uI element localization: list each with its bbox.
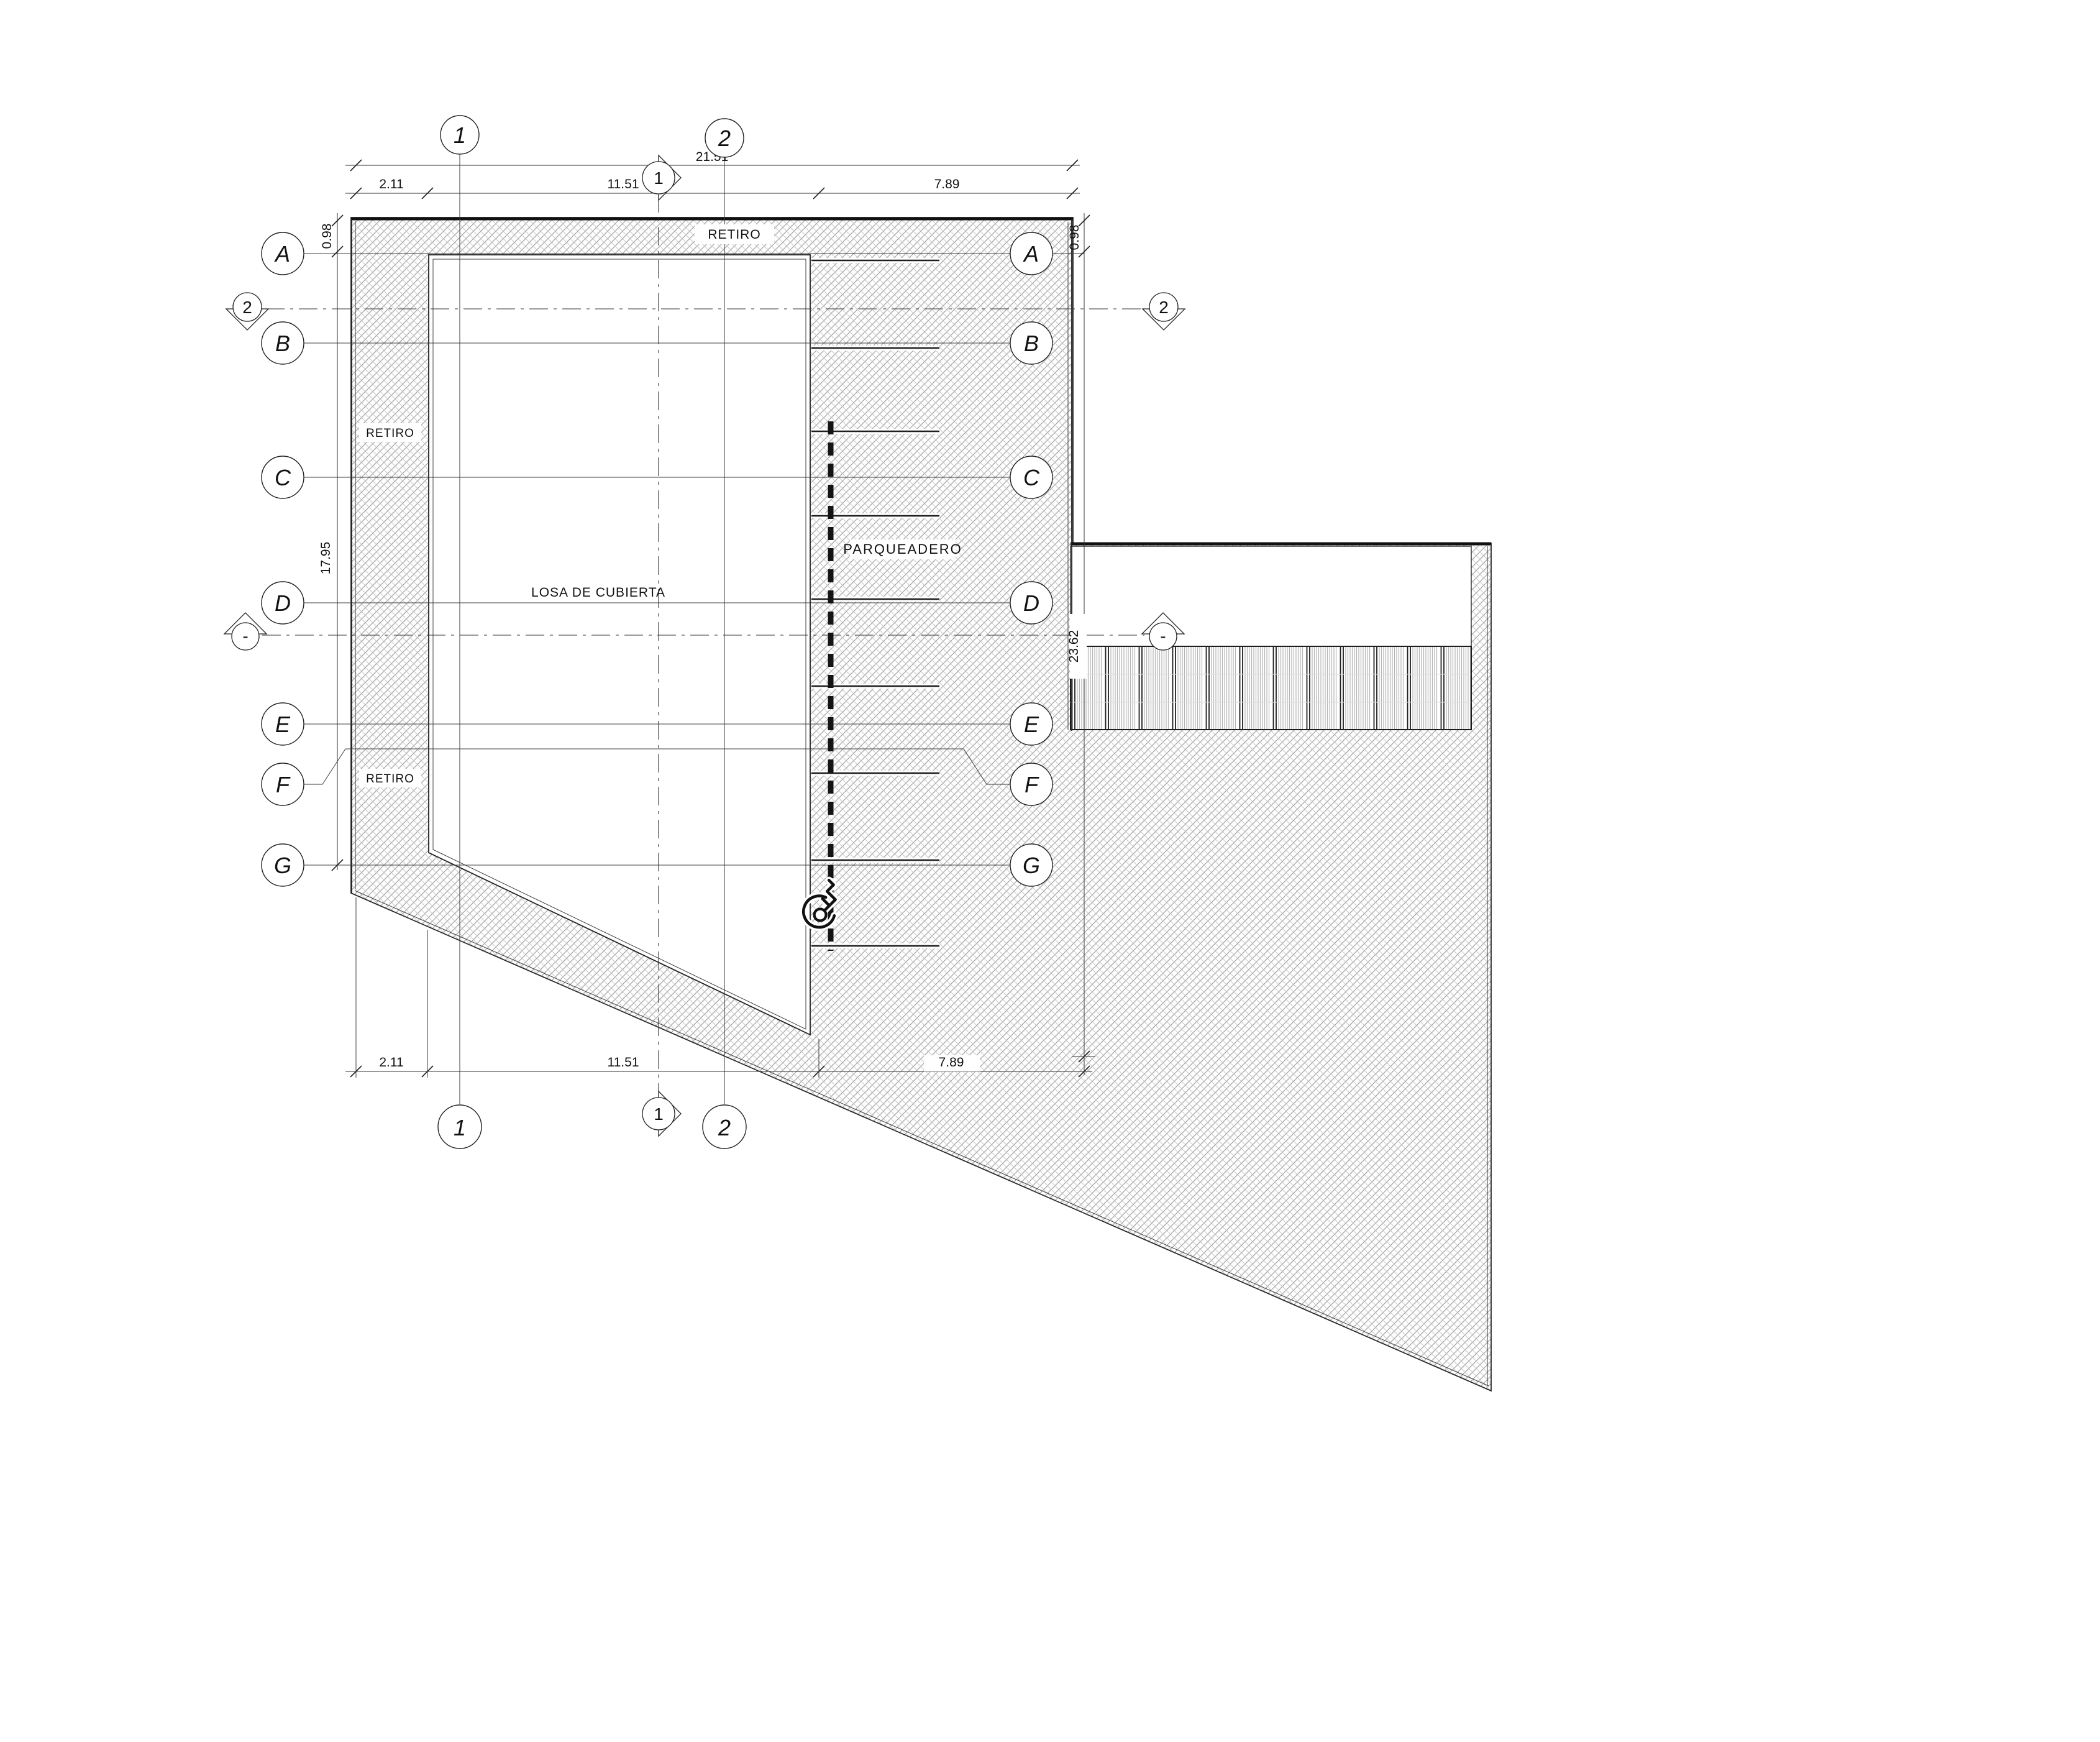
dim-slab-width-top: 11.51 bbox=[608, 177, 639, 191]
grid-bubble-col1-bottom-label: 1 bbox=[454, 1115, 466, 1140]
row-c-left-label: C bbox=[275, 465, 291, 490]
blueprint-page: 21.51 2.11 11.51 7.89 2.11 11.51 7.89 0.… bbox=[0, 0, 2100, 1742]
section-marker-dash-left-label: - bbox=[242, 626, 248, 646]
dim-grid-height: 17.95 bbox=[319, 542, 333, 575]
roof-plan-drawing: 21.51 2.11 11.51 7.89 2.11 11.51 7.89 0.… bbox=[0, 0, 2100, 1742]
right-annex bbox=[1071, 546, 1471, 730]
label-retiro-left-upper: RETIRO bbox=[366, 427, 414, 440]
annex-pad bbox=[1071, 546, 1471, 646]
label-parking: PARQUEADERO bbox=[843, 541, 962, 557]
section-marker-2-left-label: 2 bbox=[242, 298, 252, 317]
section-marker-1-bottom-label: 1 bbox=[654, 1104, 664, 1124]
dim-setback-depth-left: 0.98 bbox=[320, 224, 334, 249]
label-roof-slab: LOSA DE CUBIERTA bbox=[531, 585, 665, 600]
annex-ramp-stripes bbox=[1071, 646, 1471, 730]
dim-setback-width-bottom: 2.11 bbox=[379, 1055, 403, 1070]
row-b-left-label: B bbox=[275, 331, 290, 356]
dim-slab-width-bottom: 11.51 bbox=[608, 1055, 639, 1070]
dim-parking-width-top: 7.89 bbox=[934, 177, 960, 191]
section-marker-dash-right-label: - bbox=[1160, 626, 1166, 646]
section-marker-1-top-label: 1 bbox=[654, 168, 664, 188]
row-e-left-label: E bbox=[275, 712, 291, 737]
row-d-right-label: D bbox=[1023, 590, 1039, 616]
row-c-right-label: C bbox=[1023, 465, 1040, 490]
label-retiro-top: RETIRO bbox=[708, 227, 760, 242]
row-a-left-label: A bbox=[274, 241, 290, 267]
grid-bubble-col1-top-label: 1 bbox=[454, 122, 466, 148]
row-e-right-label: E bbox=[1024, 712, 1039, 737]
grid-bubble-col2-top-label: 2 bbox=[718, 126, 731, 151]
grid-bubble-col2-bottom-label: 2 bbox=[718, 1115, 731, 1140]
row-f-left-label: F bbox=[276, 772, 291, 797]
row-b-right-label: B bbox=[1024, 331, 1039, 356]
row-d-left-label: D bbox=[275, 590, 291, 616]
row-f-right-label: F bbox=[1025, 772, 1039, 797]
row-g-right-label: G bbox=[1023, 853, 1040, 878]
row-g-left-label: G bbox=[274, 853, 291, 878]
label-retiro-left-lower: RETIRO bbox=[366, 772, 414, 786]
dim-setback-depth-right: 0.98 bbox=[1067, 225, 1082, 250]
dim-setback-width-top: 2.11 bbox=[379, 177, 403, 191]
dim-parking-width-bottom: 7.89 bbox=[939, 1055, 964, 1070]
dim-site-height: 23.62 bbox=[1067, 630, 1081, 663]
row-a-right-label: A bbox=[1023, 241, 1039, 267]
section-marker-2-right-label: 2 bbox=[1159, 298, 1169, 317]
grid-bubbles-rows-left: A B C D E F G bbox=[262, 232, 304, 886]
